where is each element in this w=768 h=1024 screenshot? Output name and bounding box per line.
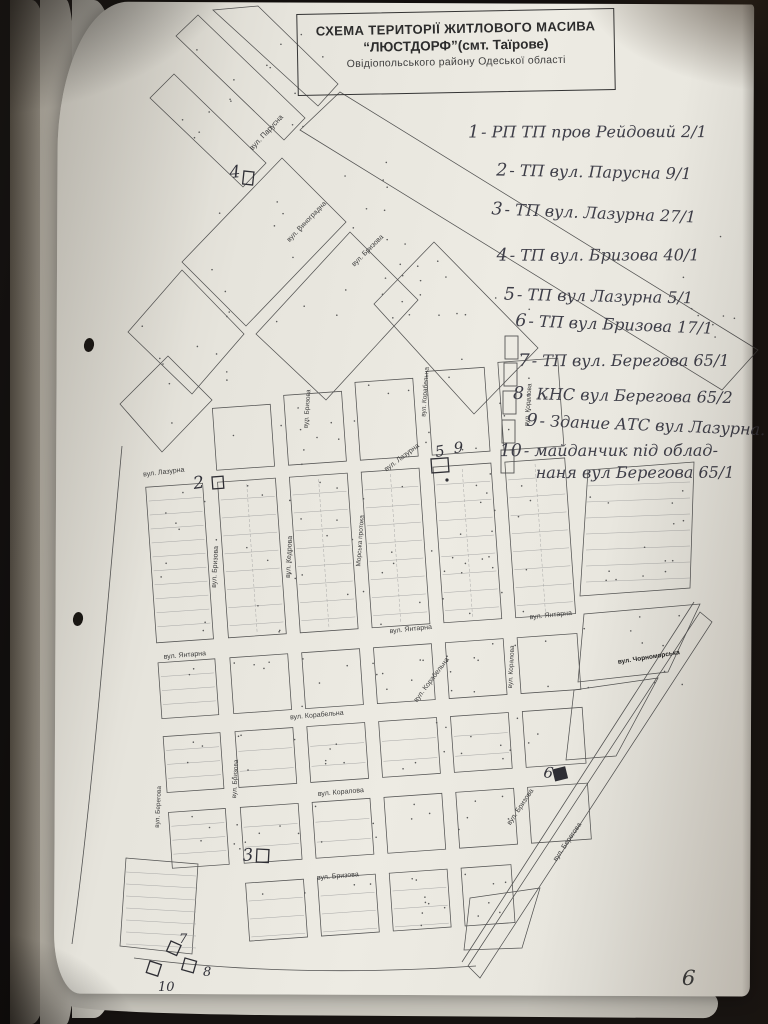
legend-item-number: 5 — [504, 285, 516, 305]
legend-item: 8- КНС вул Берегова 65/2 — [513, 384, 733, 408]
legend-item-text: - РП ТП пров Рейдовий 2/1 — [481, 122, 707, 141]
legend-item: 6- ТП вул Бризова 17/1 — [515, 311, 713, 339]
legend-item-text: - майданчик під облад- — [524, 441, 718, 460]
legend-item: 7- ТП вул. Берегова 65/1 — [519, 351, 730, 371]
legend-item-number: 6 — [515, 311, 527, 331]
legend-item-text: - ТП вул. Берегова 65/1 — [532, 351, 730, 370]
legend-item: 3- ТП вул. Лазурна 27/1 — [491, 199, 696, 227]
legend-item-number: 2 — [496, 161, 508, 181]
photo-of-document: вул. Паруснавул. Винограднавул. Бризовав… — [0, 0, 768, 1024]
legend-item-text: - ТП вул. Парусна 9/1 — [509, 161, 691, 183]
legend-item-number: 8 — [513, 384, 525, 404]
legend-item-number: 3 — [491, 199, 503, 219]
legend-item-number: 4 — [497, 246, 508, 266]
legend-item-number: 9 — [526, 411, 538, 431]
legend-item-number: 10 — [500, 441, 522, 461]
legend-item-number: 7 — [519, 351, 530, 371]
legend-item: 5- ТП вул Лазурна 5/1 — [504, 285, 694, 309]
legend-item-text: - Здание АТС вул Лазурна. — [539, 411, 765, 439]
legend-item: 2- ТП вул. Парусна 9/1 — [496, 161, 692, 185]
legend-item: 1- РП ТП пров Рейдовий 2/1 — [468, 122, 707, 142]
handwritten-legend: 1- РП ТП пров Рейдовий 2/12- ТП вул. Пар… — [0, 0, 768, 1024]
legend-item: 9- Здание АТС вул Лазурна. — [526, 411, 766, 441]
legend-item-text: - КНС вул Берегова 65/2 — [526, 384, 733, 407]
legend-item-text: - ТП вул Бризова 17/1 — [528, 311, 713, 337]
legend-item-text: - ТП вул. Бризова 40/1 — [510, 245, 700, 264]
legend-item-number: 1 — [468, 122, 479, 142]
legend-item: 10- майданчик під облад-наня вул Берегов… — [500, 441, 735, 482]
legend-item: 4- ТП вул. Бризова 40/1 — [497, 245, 700, 265]
page-number: 6 — [681, 966, 696, 991]
legend-item-text: наня вул Берегова 65/1 — [536, 463, 735, 482]
legend-item-text: - ТП вул Лазурна 5/1 — [517, 285, 693, 307]
legend-item-text: - ТП вул. Лазурна 27/1 — [504, 200, 696, 227]
